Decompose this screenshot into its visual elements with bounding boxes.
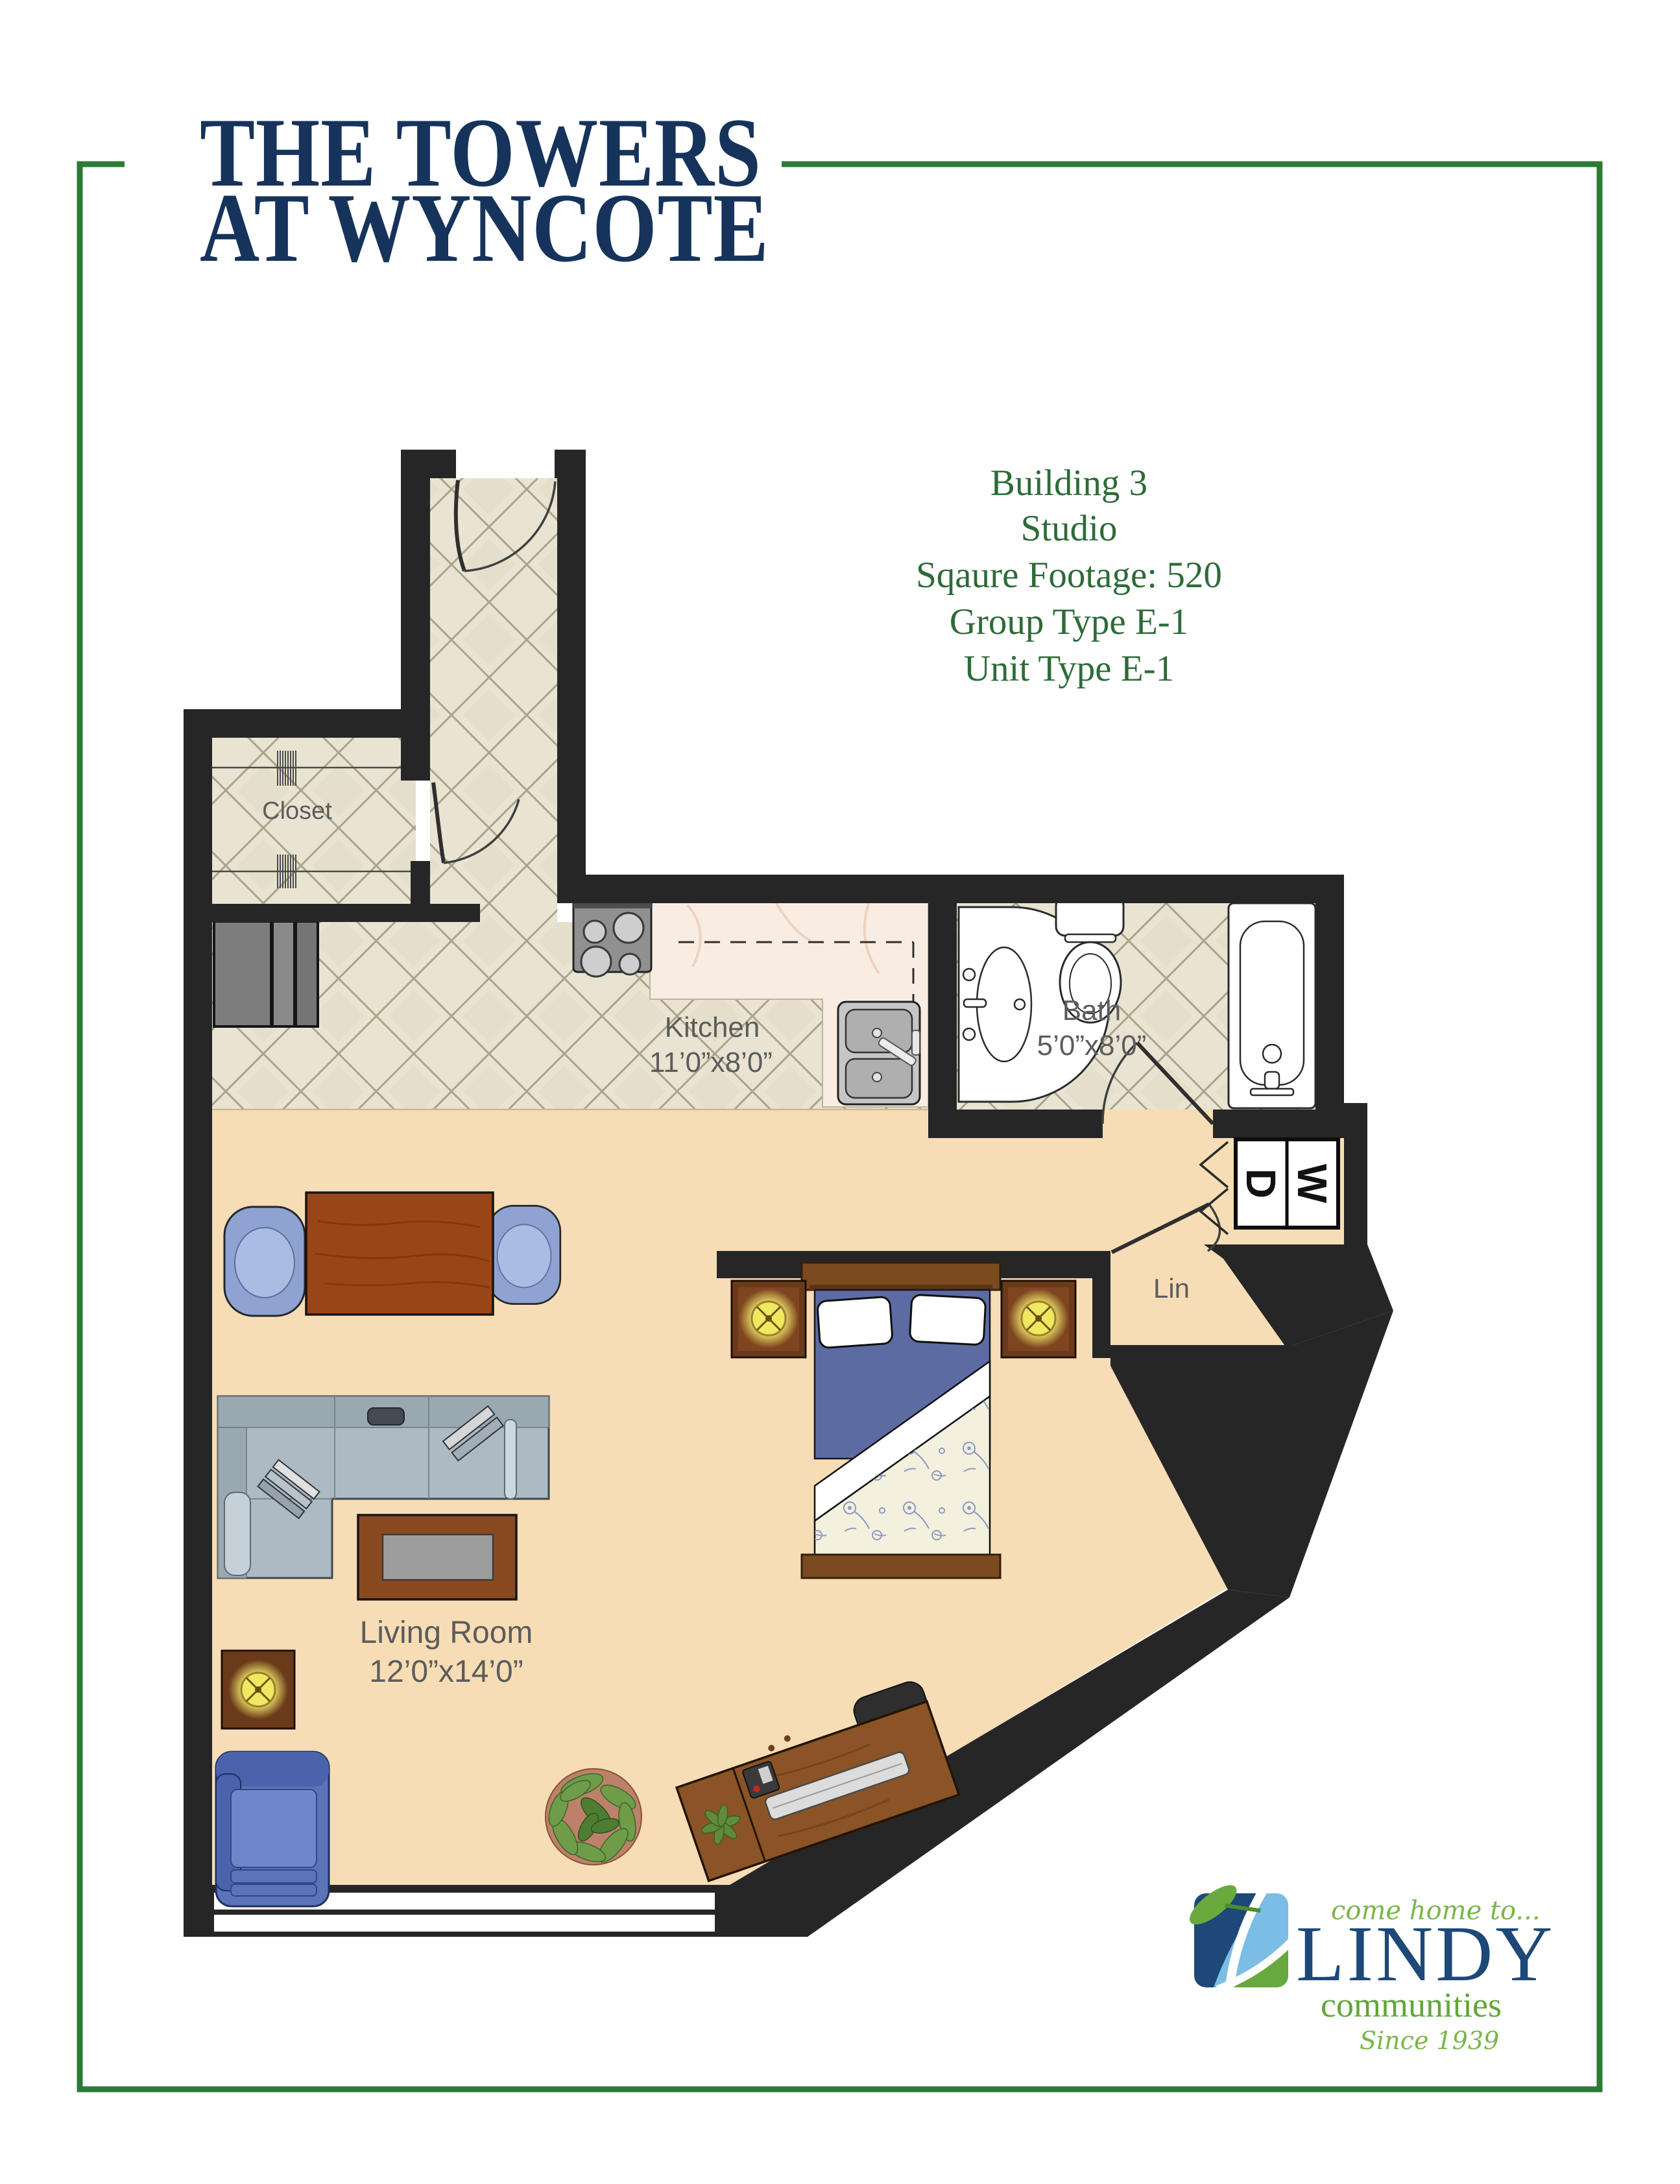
lamp-icon [228,1660,288,1719]
refrigerator [214,921,318,1026]
bed [802,1263,1000,1578]
info-unit-type: Unit Type E-1 [964,648,1174,689]
lamp-icon [739,1289,798,1348]
info-unit-kind: Studio [1021,508,1118,549]
remote [368,1408,404,1425]
washer-label: W [1289,1164,1336,1204]
bath-label: Bath [1062,995,1122,1026]
side-table [222,1651,294,1729]
kitchen-label: Kitchen [665,1012,760,1043]
floor-plan-page: THE TOWERS AT WYNCOTE Building 3 Studio … [0,0,1680,2184]
info-group: Group Type E-1 [950,601,1189,642]
dining-table [306,1193,493,1315]
property-title: THE TOWERS AT WYNCOTE [200,99,769,283]
info-sqft: Sqaure Footage: 520 [916,555,1222,596]
floor-plan: D W [184,450,1393,1937]
bath-dims: 5’0”x8’0” [1037,1030,1147,1062]
kitchen-sink [838,1002,920,1104]
lamp-icon [1009,1289,1068,1348]
closet-label: Closet [262,797,332,825]
armchair [216,1752,329,1906]
bathtub [1229,903,1315,1108]
dryer-label: D [1238,1169,1284,1198]
logo-since: Since 1939 [1360,2026,1499,2055]
coffee-table [358,1515,516,1599]
living-room-dims: 12’0”x14’0” [369,1655,523,1689]
title-line-2: AT WYNCOTE [200,174,769,283]
dining-chair-left [224,1207,305,1316]
logo-name: LINDY [1296,1910,1555,1998]
washer-dryer: D W [1236,1139,1338,1228]
kitchen-dims: 11’0”x8’0” [649,1047,773,1078]
nightstand-right [1002,1281,1075,1357]
building-info: Building 3 Studio Sqaure Footage: 520 Gr… [916,463,1222,689]
info-building: Building 3 [990,463,1147,504]
lindy-logo-icon [1184,1875,1291,1991]
lindy-logo: come home to... LINDY communities Since … [1184,1875,1555,2055]
dining-chair-right [488,1206,560,1304]
nightstand-left [732,1281,806,1357]
floor-plan-canvas: THE TOWERS AT WYNCOTE Building 3 Studio … [0,0,1680,2184]
linen-label: Lin [1153,1273,1190,1304]
living-room-label: Living Room [360,1616,533,1650]
logo-subtitle: communities [1321,1985,1502,2024]
